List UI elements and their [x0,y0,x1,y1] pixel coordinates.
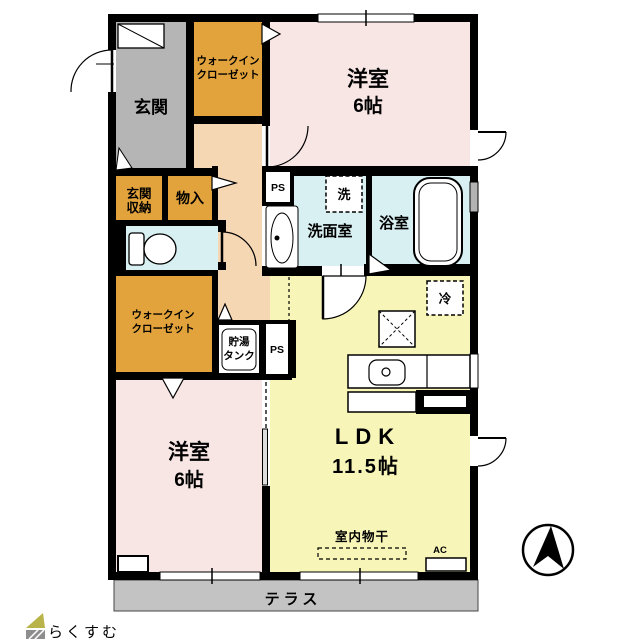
ldk-floor [270,272,470,572]
window-bedroom2 [160,572,260,580]
label-bedroom1-size: 6帖 [353,94,383,117]
floor-plan-page: 玄関 ウォークイン クローゼット 洋室 6帖 玄関 収納 物入 洗 洗面室 浴室… [0,0,640,640]
label-tank-line2: タンク [223,350,255,362]
floor-plan-drawing: 玄関 ウォークイン クローゼット 洋室 6帖 玄関 収納 物入 洗 洗面室 浴室… [0,0,640,640]
site-logo [26,613,45,639]
label-tank-line1: 貯湯 [229,335,250,348]
vent-box [118,556,148,572]
wash-basin [271,213,293,263]
label-wic2-line2: クローゼット [132,322,195,335]
logo-roof-icon [26,613,45,628]
label-indoor-laundry: 室内物干 [335,529,389,544]
label-pipe-space-1: PS [271,182,285,194]
hallway-floor [194,124,262,172]
north-compass [523,525,573,575]
kitchen-counter-lower [348,392,416,412]
label-washroom: 洗面室 [307,222,352,240]
label-entrance-storage-line2: 収納 [126,200,151,215]
toilet-bowl [144,234,176,264]
room-fills [116,22,470,572]
label-ldk: LDK [335,424,401,449]
label-wic2-line1: ウォークイン [132,309,195,321]
window-kitchen [470,354,478,388]
toilet-tank [129,233,144,265]
label-wic1-line1: ウォークイン [197,55,260,67]
bedroom1-ext-door-opening [470,130,478,166]
bedroom2-sliding-door [263,429,268,485]
label-bathroom: 浴室 [379,214,409,232]
ac-panel [426,558,466,571]
bedroom-1-floor [270,22,470,168]
kitchen-counter [348,355,470,388]
label-ac: AC [433,545,447,556]
label-washer: 洗 [337,187,350,202]
label-storage: 物入 [176,190,204,206]
label-fridge: 冷 [439,291,452,306]
label-bedroom1: 洋室 [347,67,389,91]
label-terrace: テラス [265,591,322,608]
window-bathroom [470,182,478,212]
bathtub [414,178,462,266]
label-ldk-size: 11.5帖 [332,455,400,478]
window-ldk-bottom [300,572,418,580]
label-bedroom2: 洋室 [168,440,210,464]
logo-text: らくすむ [48,624,120,640]
label-pipe-space-2: PS [270,344,284,356]
label-entrance: 玄関 [134,97,168,117]
label-bedroom2-size: 6帖 [174,468,204,491]
ldk-door-opening [322,266,364,276]
label-entrance-storage-line1: 玄関 [126,186,151,201]
ldk-ext-door-opening [470,436,478,466]
label-wic1-line2: クローゼット [197,68,260,81]
